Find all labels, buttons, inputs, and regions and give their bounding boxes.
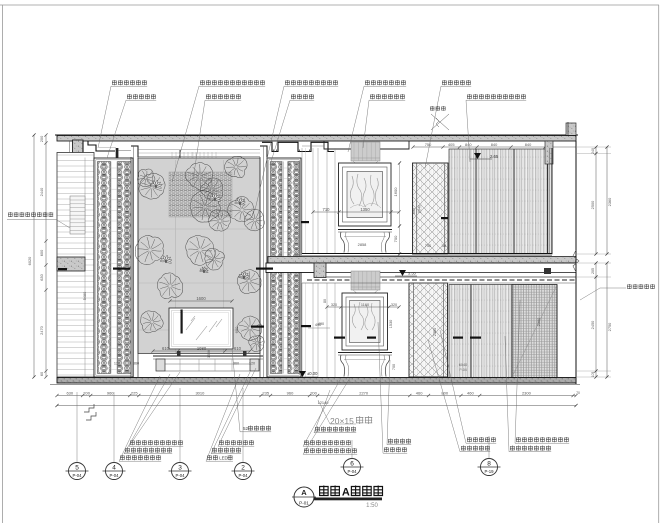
svg-text:2270: 2270: [359, 390, 369, 395]
svg-text:20×15: 20×15: [330, 416, 354, 426]
svg-text:320: 320: [391, 303, 397, 307]
svg-text:105: 105: [591, 372, 595, 378]
svg-text:P-04: P-04: [347, 469, 357, 474]
svg-text:610: 610: [234, 346, 242, 351]
svg-text:P-04: P-04: [175, 473, 185, 478]
svg-text:200: 200: [39, 135, 44, 142]
svg-text:840: 840: [491, 142, 498, 147]
svg-text:3: 3: [178, 465, 182, 472]
svg-text:2.65: 2.65: [490, 154, 499, 159]
svg-text:2300: 2300: [522, 390, 532, 395]
svg-text:P-04: P-04: [72, 473, 82, 478]
svg-text:LED: LED: [219, 456, 228, 461]
svg-text:P-04: P-04: [238, 473, 248, 478]
svg-text:600: 600: [234, 326, 239, 333]
svg-text:710: 710: [323, 207, 331, 212]
svg-text:70: 70: [576, 391, 580, 395]
svg-text:2470: 2470: [39, 325, 44, 334]
svg-text:460: 460: [416, 390, 423, 395]
svg-text:1350: 1350: [360, 207, 370, 212]
svg-text:2858: 2858: [358, 242, 367, 247]
svg-text:120: 120: [114, 362, 120, 366]
svg-text:200: 200: [83, 390, 90, 395]
svg-text:490: 490: [315, 323, 321, 327]
svg-text:840: 840: [525, 142, 532, 147]
svg-text:4: 4: [112, 465, 116, 472]
svg-text:8: 8: [487, 461, 491, 468]
svg-text:52: 52: [243, 426, 249, 431]
svg-text:120: 120: [249, 362, 255, 366]
svg-text:2040: 2040: [418, 205, 422, 213]
svg-text:2450: 2450: [590, 320, 595, 329]
svg-text:750: 750: [425, 142, 432, 147]
svg-text:6: 6: [350, 461, 354, 468]
svg-text:1530: 1530: [389, 320, 393, 328]
svg-text:1600: 1600: [196, 296, 206, 301]
svg-text:700: 700: [392, 364, 396, 370]
svg-text:460: 460: [467, 390, 474, 395]
svg-text:2500: 2500: [590, 200, 595, 209]
svg-text:2360: 2360: [607, 197, 612, 206]
svg-text:5: 5: [75, 465, 79, 472]
svg-text:235: 235: [262, 390, 269, 395]
svg-text:200: 200: [310, 390, 317, 395]
svg-text:960: 960: [107, 390, 114, 395]
svg-text:240: 240: [591, 148, 595, 154]
svg-text:960: 960: [287, 390, 294, 395]
svg-text:5.55: 5.55: [408, 271, 417, 276]
svg-text:630: 630: [66, 390, 73, 395]
svg-text:38: 38: [442, 244, 446, 248]
svg-text:2: 2: [241, 465, 245, 472]
svg-text:630: 630: [39, 273, 44, 280]
svg-text:±0.00: ±0.00: [307, 371, 318, 376]
svg-text:750: 750: [425, 244, 431, 248]
svg-text:1500: 1500: [207, 350, 211, 358]
svg-text:405: 405: [448, 142, 455, 147]
svg-text:5480: 5480: [83, 292, 87, 300]
svg-text:2380: 2380: [537, 318, 541, 326]
svg-text:360: 360: [233, 362, 239, 366]
svg-text:A: A: [301, 488, 307, 497]
svg-text:600: 600: [412, 208, 416, 214]
svg-text:80: 80: [323, 299, 327, 303]
svg-text:1160: 1160: [361, 303, 369, 307]
svg-text:2440: 2440: [39, 187, 44, 196]
svg-text:1080: 1080: [197, 346, 207, 351]
svg-text:225: 225: [131, 390, 138, 395]
svg-text:2360: 2360: [433, 328, 437, 336]
svg-text:205: 205: [591, 268, 595, 274]
svg-text:P-04: P-04: [459, 368, 467, 372]
svg-text:1600: 1600: [393, 187, 398, 197]
svg-text:P-01: P-01: [299, 501, 309, 506]
svg-text:6040: 6040: [459, 363, 467, 367]
svg-text:2750: 2750: [607, 322, 612, 331]
svg-text:P-04: P-04: [109, 473, 119, 478]
svg-text:6020: 6020: [27, 256, 32, 265]
svg-text:A: A: [342, 486, 350, 498]
svg-text:1:50: 1:50: [366, 503, 378, 509]
svg-text:320: 320: [331, 303, 337, 307]
svg-text:600: 600: [39, 249, 44, 256]
svg-text:3010: 3010: [195, 390, 205, 395]
svg-text:P-19: P-19: [484, 469, 494, 474]
svg-text:700: 700: [393, 235, 398, 242]
svg-text:610: 610: [162, 346, 170, 351]
